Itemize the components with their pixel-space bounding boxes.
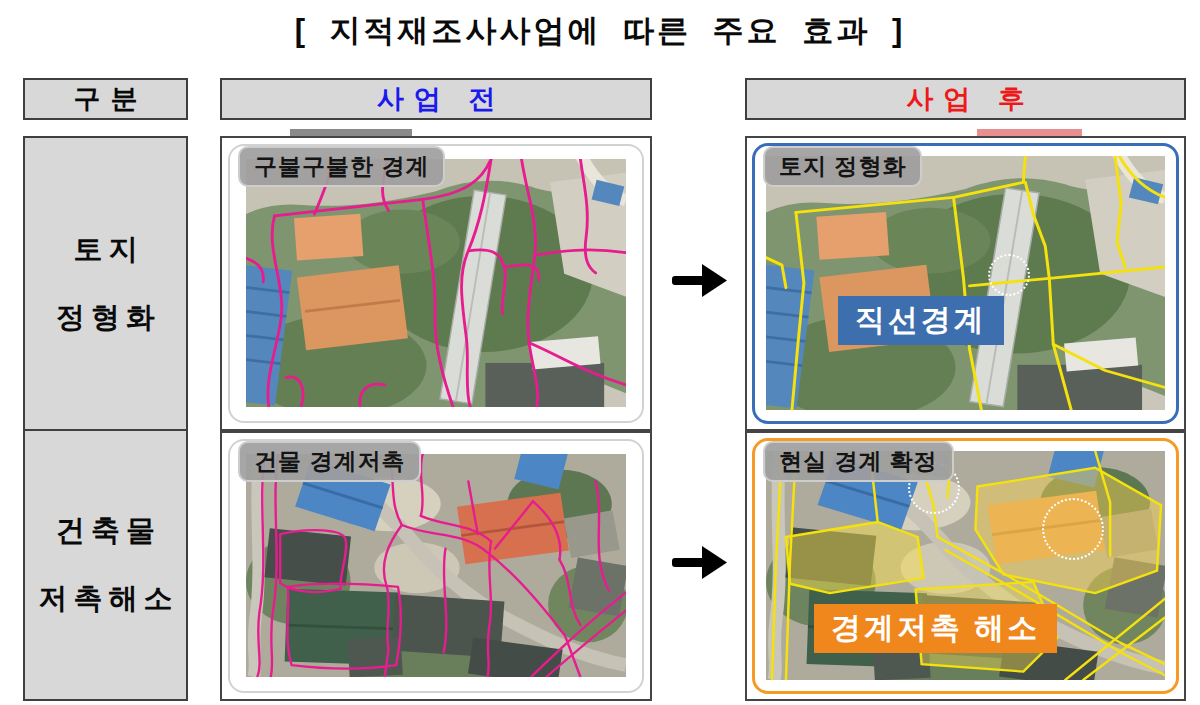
header-after-label: 사업 후 — [896, 81, 1035, 117]
header-category: 구분 — [23, 78, 188, 120]
cell-after-row1: 토지 정형화 — [745, 136, 1186, 431]
cell-after-row2: 현실 경계 확정 — [745, 431, 1186, 701]
header-before-label: 사업 전 — [367, 81, 506, 117]
dotted-circle-annotation — [988, 254, 1030, 296]
aerial-photo-after-row2: 경계저촉 해소 — [766, 451, 1165, 680]
header-category-label: 구분 — [64, 81, 148, 117]
photo-label-after-row1: 토지 정형화 — [763, 146, 922, 187]
transform-arrow-row1 — [652, 258, 745, 302]
aerial-map-before-row2 — [246, 454, 626, 677]
cell-before-row2: 건물 경계저촉 — [220, 431, 652, 701]
aerial-photo-before-row2 — [246, 454, 626, 677]
photo-card-before-row2: 건물 경계저촉 — [228, 439, 644, 693]
figure-title: [ 지적재조사사업에 따른 주요 효과 ] — [0, 10, 1200, 52]
dotted-circle-annotation — [1042, 498, 1104, 560]
after-frame-row2: 현실 경계 확정 — [752, 438, 1179, 694]
category-row2-line2: 저촉해소 — [33, 579, 179, 619]
category-cell-row2: 건축물 저촉해소 — [25, 431, 186, 699]
aerial-map-after-row1 — [766, 156, 1165, 410]
conflict-resolved-badge: 경계저촉 해소 — [814, 604, 1057, 653]
category-row2-line1: 건축물 — [50, 511, 161, 551]
photo-label-before-row1: 구불구불한 경계 — [238, 146, 445, 187]
right-arrow-icon — [670, 540, 728, 584]
aerial-map-before-row1 — [246, 159, 626, 407]
after-frame-row1: 토지 정형화 — [752, 143, 1179, 424]
category-row1-line2: 정형화 — [50, 298, 161, 338]
category-column: 토지 정형화 건축물 저촉해소 — [23, 136, 188, 701]
aerial-photo-before-row1 — [246, 159, 626, 407]
photo-card-before-row1: 구불구불한 경계 — [228, 144, 644, 423]
aerial-photo-after-row1: 직선경계 — [766, 156, 1165, 410]
screenshot-artifact-bar — [977, 129, 1082, 136]
category-cell-row1: 토지 정형화 — [25, 138, 186, 431]
right-arrow-icon — [670, 258, 728, 302]
header-after: 사업 후 — [745, 78, 1186, 120]
straight-boundary-badge: 직선경계 — [838, 296, 1004, 345]
cell-before-row1: 구불구불한 경계 — [220, 136, 652, 431]
transform-arrow-row2 — [652, 540, 745, 584]
header-before: 사업 전 — [220, 78, 652, 120]
photo-label-before-row2: 건물 경계저촉 — [238, 441, 421, 482]
category-row1-line1: 토지 — [68, 230, 144, 270]
figure-canvas: [ 지적재조사사업에 따른 주요 효과 ] 구분 사업 전 사업 후 토지 정형… — [0, 0, 1200, 705]
photo-label-after-row2: 현실 경계 확정 — [763, 441, 954, 482]
screenshot-artifact-bar — [290, 129, 412, 136]
